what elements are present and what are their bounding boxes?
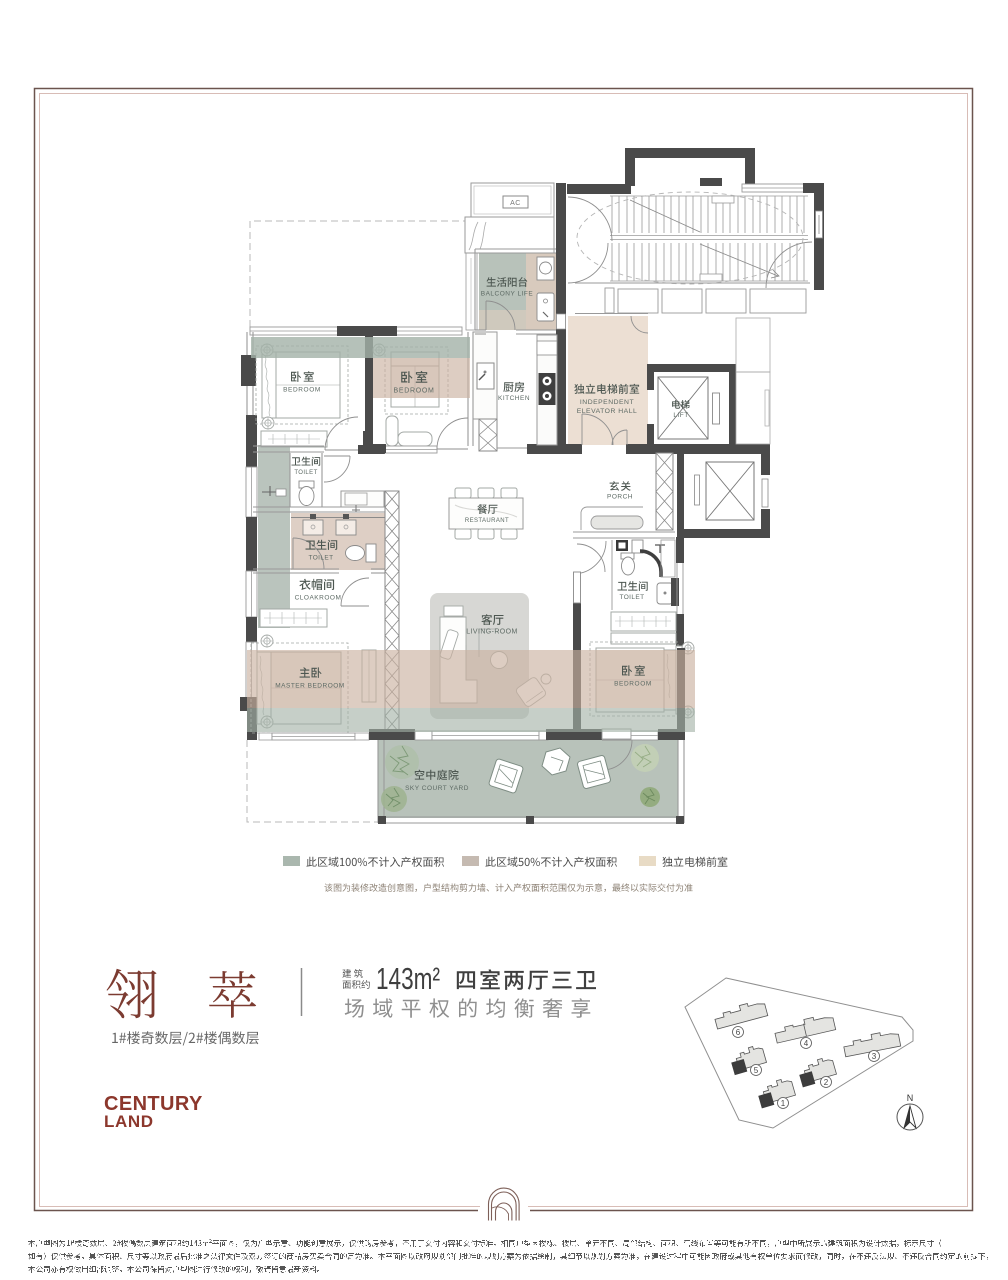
svg-text:6: 6 bbox=[736, 1028, 741, 1037]
svg-text:RESTAURANT: RESTAURANT bbox=[465, 518, 509, 524]
svg-text:4: 4 bbox=[804, 1039, 809, 1048]
svg-text:143m²: 143m² bbox=[376, 961, 440, 996]
svg-text:ELEVATOR HALL: ELEVATOR HALL bbox=[577, 408, 638, 415]
svg-text:BEDROOM: BEDROOM bbox=[393, 388, 434, 395]
svg-text:5: 5 bbox=[754, 1066, 759, 1075]
svg-text:TOILET: TOILET bbox=[619, 594, 644, 601]
svg-text:CLOAKROOM: CLOAKROOM bbox=[295, 595, 342, 602]
svg-text:N: N bbox=[907, 1093, 914, 1103]
svg-text:TOILET: TOILET bbox=[308, 555, 333, 562]
svg-text:2: 2 bbox=[824, 1078, 829, 1087]
svg-text:AC: AC bbox=[510, 200, 521, 207]
svg-text:MASTER BEDROOM: MASTER BEDROOM bbox=[275, 683, 344, 690]
svg-text:SKY COURT YARD: SKY COURT YARD bbox=[405, 785, 469, 792]
svg-text:LAND: LAND bbox=[104, 1112, 154, 1131]
svg-text:3: 3 bbox=[872, 1052, 877, 1061]
svg-text:LIFT: LIFT bbox=[673, 412, 688, 419]
svg-text:LIVING-ROOM: LIVING-ROOM bbox=[466, 629, 517, 636]
svg-text:BEDROOM: BEDROOM bbox=[283, 387, 321, 394]
svg-text:BALCONY LIFE: BALCONY LIFE bbox=[481, 291, 534, 298]
svg-text:BEDROOM: BEDROOM bbox=[614, 681, 652, 688]
svg-text:KITCHEN: KITCHEN bbox=[498, 395, 530, 402]
svg-text:1: 1 bbox=[781, 1099, 786, 1108]
svg-text:INDEPENDENT: INDEPENDENT bbox=[580, 399, 634, 406]
svg-text:TOILET: TOILET bbox=[294, 470, 317, 476]
svg-text:PORCH: PORCH bbox=[607, 494, 633, 501]
